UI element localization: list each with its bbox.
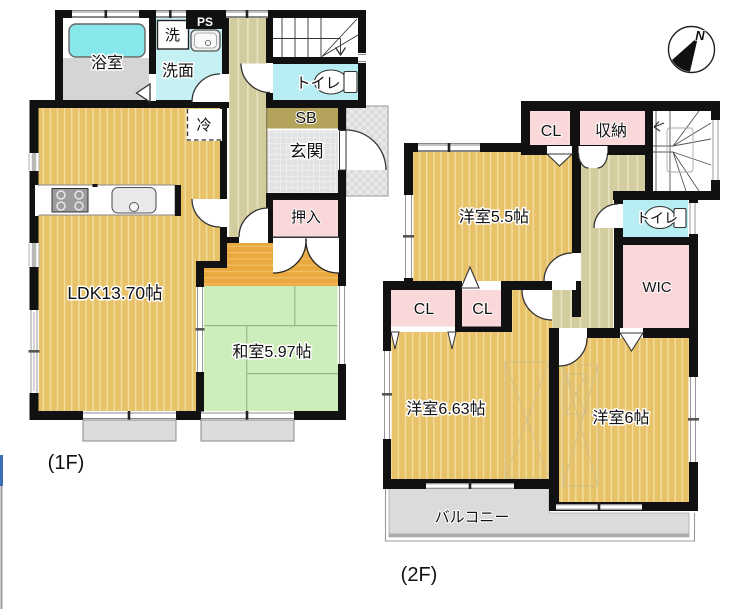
- svg-text:洋室6.63帖: 洋室6.63帖: [406, 400, 485, 418]
- svg-text:CL: CL: [472, 301, 493, 318]
- svg-text:和室5.97帖: 和室5.97帖: [232, 343, 311, 361]
- svg-text:洗: 洗: [165, 27, 180, 44]
- svg-text:バルコニー: バルコニー: [435, 509, 510, 526]
- svg-text:CL: CL: [414, 301, 435, 318]
- svg-text:トイレ: トイレ: [636, 210, 678, 226]
- svg-text:(2F): (2F): [401, 564, 438, 586]
- svg-text:洋室5.5帖: 洋室5.5帖: [459, 208, 529, 226]
- svg-text:LDK13.70帖: LDK13.70帖: [67, 283, 162, 303]
- svg-text:収納: 収納: [595, 122, 627, 140]
- svg-text:WIC: WIC: [642, 279, 671, 296]
- svg-text:PS: PS: [197, 15, 213, 29]
- svg-text:(1F): (1F): [48, 452, 85, 474]
- svg-text:洗面: 洗面: [162, 62, 194, 80]
- svg-text:CL: CL: [541, 123, 562, 140]
- svg-text:SB: SB: [295, 110, 316, 127]
- svg-text:冷: 冷: [196, 117, 211, 134]
- svg-text:洋室6帖: 洋室6帖: [593, 409, 650, 427]
- svg-text:N: N: [695, 28, 705, 43]
- svg-text:押入: 押入: [291, 209, 321, 226]
- svg-text:トイレ: トイレ: [295, 75, 340, 92]
- svg-text:浴室: 浴室: [91, 54, 123, 72]
- svg-text:玄関: 玄関: [290, 142, 324, 161]
